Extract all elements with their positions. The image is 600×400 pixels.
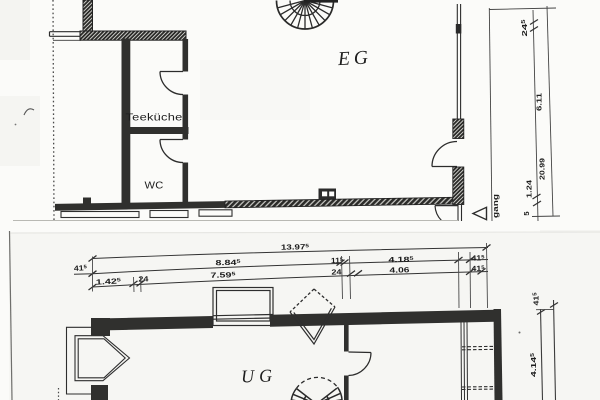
svg-text:Teeküche: Teeküche: [126, 112, 183, 124]
svg-text:4.06: 4.06: [389, 265, 409, 274]
svg-text:EG: EG: [336, 47, 372, 70]
svg-text:24: 24: [331, 267, 342, 276]
svg-text:5: 5: [522, 211, 531, 215]
svg-text:6.11: 6.11: [535, 93, 544, 111]
svg-text:WC: WC: [145, 180, 164, 192]
svg-text:13.975: 13.975: [281, 242, 309, 251]
svg-text:UG: UG: [241, 365, 278, 386]
svg-text:20.99: 20.99: [538, 158, 547, 180]
svg-text:24: 24: [138, 274, 149, 283]
svg-text:gang: gang: [493, 194, 500, 218]
svg-text:1.24: 1.24: [525, 179, 534, 198]
